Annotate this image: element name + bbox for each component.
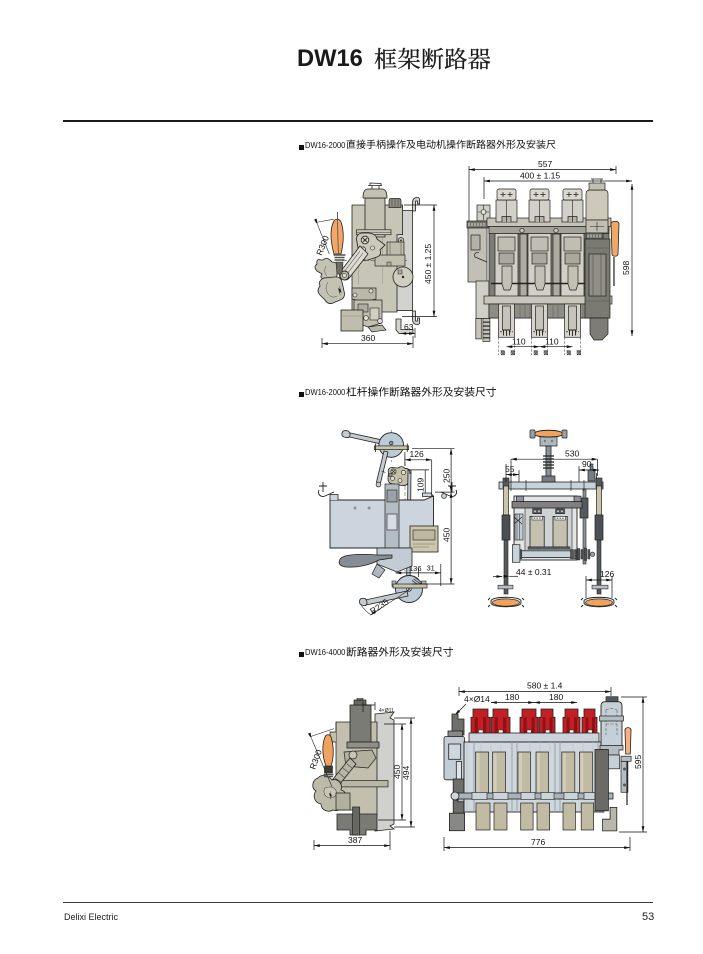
svg-text:4×Ø14: 4×Ø14 — [464, 694, 490, 704]
svg-text:250: 250 — [442, 469, 452, 483]
svg-text:R300: R300 — [307, 748, 323, 771]
svg-text:530: 530 — [565, 449, 579, 459]
svg-text:387: 387 — [348, 835, 362, 845]
svg-text:400 ± 1.15: 400 ± 1.15 — [520, 171, 560, 181]
svg-text:598: 598 — [621, 261, 631, 275]
svg-text:90: 90 — [582, 459, 592, 469]
svg-text:R300: R300 — [314, 234, 331, 257]
svg-text:136: 136 — [409, 564, 422, 573]
svg-text:126: 126 — [410, 449, 424, 459]
svg-text:44 ± 0.31: 44 ± 0.31 — [516, 567, 552, 577]
svg-text:31: 31 — [427, 564, 435, 573]
svg-text:110: 110 — [545, 337, 559, 347]
svg-text:557: 557 — [538, 159, 552, 169]
svg-text:360: 360 — [361, 333, 375, 343]
svg-text:63: 63 — [404, 322, 414, 332]
svg-text:55: 55 — [505, 464, 515, 474]
svg-text:595: 595 — [633, 755, 643, 769]
svg-text:450: 450 — [442, 528, 452, 542]
svg-text:494: 494 — [401, 766, 411, 780]
svg-text:450 ± 1.25: 450 ± 1.25 — [423, 244, 433, 284]
svg-text:4×Ø11: 4×Ø11 — [379, 708, 394, 714]
svg-text:180: 180 — [549, 692, 563, 702]
svg-text:126: 126 — [600, 569, 614, 579]
svg-text:180: 180 — [505, 692, 519, 702]
svg-text:109: 109 — [416, 478, 426, 492]
svg-text:110: 110 — [512, 337, 526, 347]
svg-text:580 ± 1.4: 580 ± 1.4 — [527, 681, 563, 691]
svg-text:776: 776 — [531, 837, 545, 847]
